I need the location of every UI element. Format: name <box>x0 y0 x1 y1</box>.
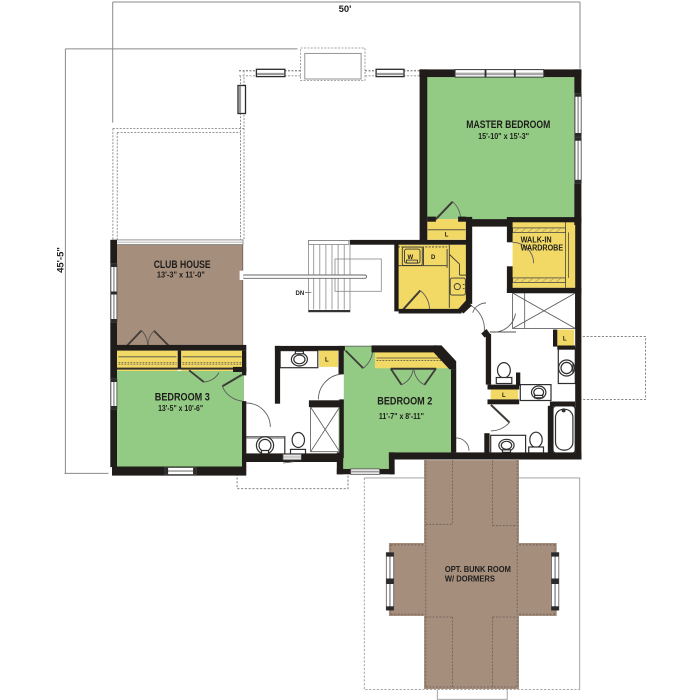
svg-text:13'-3" x 11'-0": 13'-3" x 11'-0" <box>157 271 205 280</box>
svg-text:CLUB HOUSE: CLUB HOUSE <box>154 259 211 271</box>
svg-text:BEDROOM 3: BEDROOM 3 <box>155 392 210 404</box>
svg-text:50': 50' <box>339 4 352 15</box>
svg-text:11'-7" x 8'-11": 11'-7" x 8'-11" <box>379 412 424 421</box>
svg-text:L: L <box>445 232 449 238</box>
svg-text:DN: DN <box>296 291 305 297</box>
svg-text:MASTER BEDROOM: MASTER BEDROOM <box>466 119 550 131</box>
svg-text:W/ DORMERS: W/ DORMERS <box>445 574 496 583</box>
svg-text:WARDROBE: WARDROBE <box>521 243 564 252</box>
svg-text:13'-5" x 10'-6": 13'-5" x 10'-6" <box>158 404 203 413</box>
svg-text:W: W <box>408 255 414 261</box>
svg-text:45'-5": 45'-5" <box>55 247 66 273</box>
svg-text:L: L <box>563 336 567 342</box>
svg-text:L: L <box>502 393 506 399</box>
svg-text:BEDROOM 2: BEDROOM 2 <box>377 396 432 408</box>
svg-text:D: D <box>431 255 436 261</box>
svg-text:L: L <box>325 358 329 364</box>
svg-text:OPT. BUNK ROOM: OPT. BUNK ROOM <box>445 565 511 574</box>
svg-text:15'-10" x 15'-3": 15'-10" x 15'-3" <box>478 132 529 141</box>
